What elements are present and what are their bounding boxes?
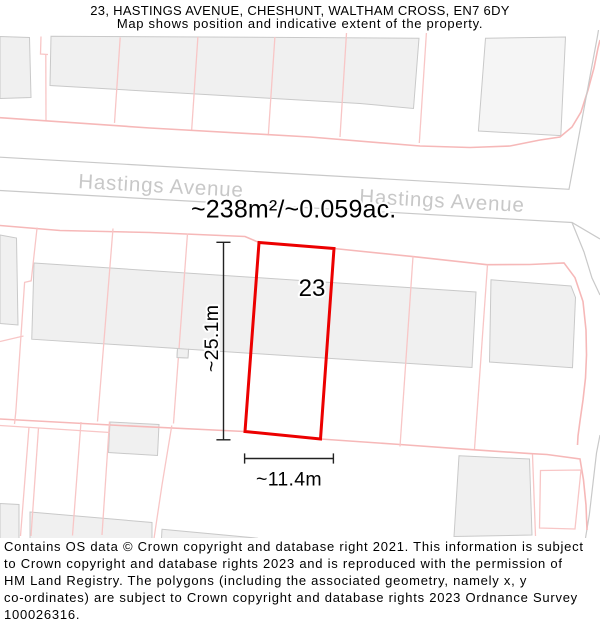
svg-text:~11.4m: ~11.4m	[256, 469, 322, 491]
svg-text:23: 23	[299, 275, 326, 302]
svg-text:~238m²/~0.059ac.: ~238m²/~0.059ac.	[191, 196, 396, 224]
svg-text:~25.1m: ~25.1m	[201, 305, 223, 372]
